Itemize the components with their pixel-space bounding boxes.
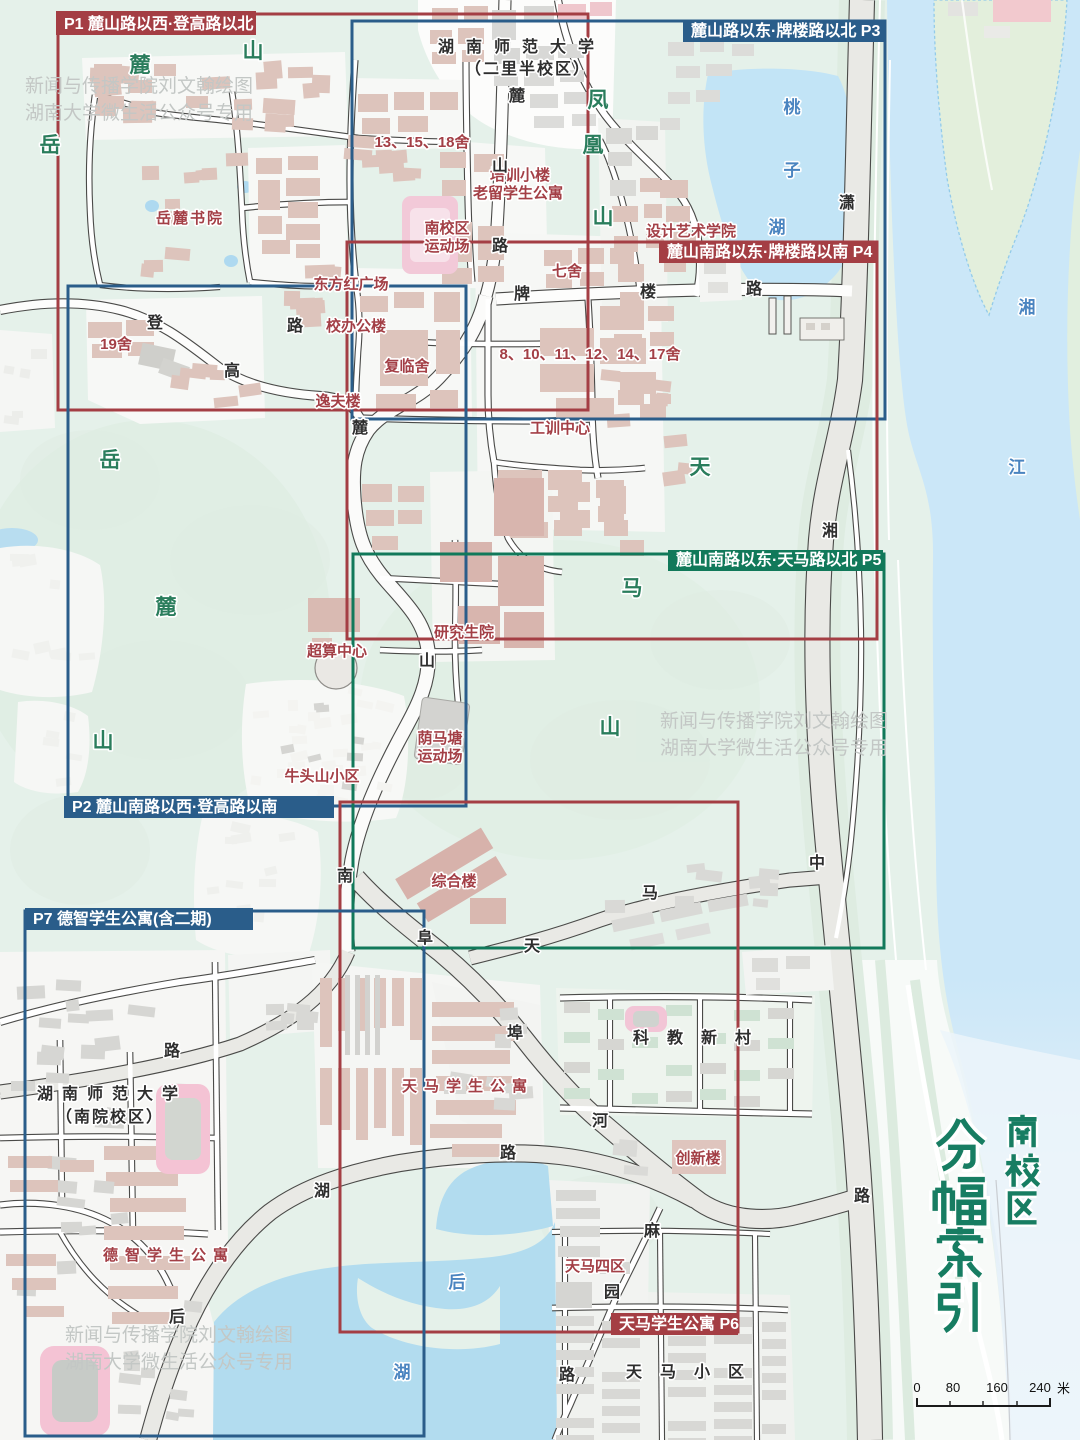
svg-text:牌: 牌 [514,284,530,303]
svg-text:湖: 湖 [394,1363,411,1382]
svg-text:新闻与传播学院刘文翰绘图: 新闻与传播学院刘文翰绘图 [25,75,253,97]
svg-text:湖: 湖 [769,218,786,237]
svg-text:（南院校区）: （南院校区） [56,1107,164,1126]
svg-text:运动场: 运动场 [424,237,469,255]
svg-text:路: 路 [492,236,509,255]
svg-text:设计艺术学院: 设计艺术学院 [646,222,736,240]
svg-text:天: 天 [690,456,712,479]
svg-text:P1 麓山路以西·登高路以北: P1 麓山路以西·登高路以北 [64,14,253,33]
svg-text:马: 马 [622,577,643,600]
svg-text:后: 后 [169,1308,185,1326]
svg-text:登: 登 [146,313,164,332]
svg-text:逸夫楼: 逸夫楼 [315,392,360,410]
svg-text:80: 80 [946,1380,960,1395]
svg-text:0: 0 [913,1380,920,1395]
svg-text:高: 高 [224,361,240,380]
svg-text:新闻与传播学院刘文翰绘图: 新闻与传播学院刘文翰绘图 [660,710,888,732]
svg-text:科教新村: 科教新村 [633,1028,769,1047]
svg-text:运动场: 运动场 [417,747,462,765]
svg-text:后: 后 [449,1273,466,1292]
svg-text:麓山南路以东·牌楼路以南 P4: 麓山南路以东·牌楼路以南 P4 [666,242,872,261]
svg-text:19舍: 19舍 [100,335,133,353]
svg-text:湘: 湘 [822,521,838,540]
svg-text:七舍: 七舍 [552,262,583,280]
svg-text:湖南大学微生活公众号专用: 湖南大学微生活公众号专用 [660,737,888,759]
svg-text:天马四区: 天马四区 [565,1258,625,1275]
svg-text:荫马塘: 荫马塘 [417,729,462,747]
svg-text:天马学生公寓 P6: 天马学生公寓 P6 [619,1314,739,1333]
svg-text:湖南大学微生活公众号专用: 湖南大学微生活公众号专用 [65,1351,293,1373]
svg-text:麓山路以东·牌楼路以北 P3: 麓山路以东·牌楼路以北 P3 [690,21,880,40]
svg-text:埠: 埠 [507,1023,523,1042]
svg-text:路: 路 [854,1186,871,1205]
svg-text:江: 江 [1009,458,1026,477]
svg-text:阜: 阜 [417,928,433,947]
svg-text:湘: 湘 [1019,297,1036,317]
svg-text:校办公楼: 校办公楼 [326,317,386,335]
svg-text:麻: 麻 [643,1221,661,1240]
svg-text:8、10、11、12、14、17舍: 8、10、11、12、14、17舍 [500,345,682,363]
svg-text:德智学生公寓: 德智学生公寓 [103,1246,235,1264]
svg-text:天马学生公寓: 天马学生公寓 [402,1077,534,1095]
svg-text:山: 山 [419,652,435,670]
svg-text:天马小区: 天马小区 [626,1363,762,1381]
svg-text:凤: 凤 [588,89,609,112]
svg-text:湖: 湖 [314,1182,330,1200]
svg-text:13、15、18舍: 13、15、18舍 [374,133,470,151]
svg-text:路: 路 [746,279,763,298]
svg-text:麓: 麓 [508,86,526,105]
svg-text:米: 米 [1057,1381,1070,1396]
svg-text:湖南大学微生活公众号专用: 湖南大学微生活公众号专用 [25,102,253,124]
svg-text:中: 中 [809,853,825,872]
svg-text:园: 园 [604,1283,620,1301]
svg-text:（二里半校区）: （二里半校区） [465,59,591,78]
svg-text:路: 路 [559,1365,576,1384]
svg-text:马: 马 [642,884,658,902]
svg-text:研究生院: 研究生院 [434,623,494,641]
svg-text:工训中心: 工训中心 [530,419,590,437]
svg-text:路: 路 [500,1143,517,1162]
svg-text:160: 160 [986,1380,1008,1395]
svg-text:凰: 凰 [583,134,604,157]
svg-text:牛头山小区: 牛头山小区 [284,767,359,785]
svg-text:麓: 麓 [130,54,152,77]
svg-text:河: 河 [592,1111,608,1130]
svg-text:天: 天 [524,938,541,955]
svg-text:麓: 麓 [351,418,369,437]
svg-text:岳: 岳 [40,134,61,157]
svg-text:南: 南 [337,866,353,885]
svg-text:湖南师范大学: 湖南师范大学 [37,1084,187,1103]
svg-text:P7 德智学生公寓(含二期): P7 德智学生公寓(含二期) [33,909,212,928]
svg-text:麓山南路以东·天马路以北 P5: 麓山南路以东·天马路以北 P5 [675,550,881,569]
svg-text:山: 山 [600,716,621,739]
svg-text:超算中心: 超算中心 [306,642,367,660]
svg-text:麓: 麓 [156,596,178,619]
svg-text:新闻与传播学院刘文翰绘图: 新闻与传播学院刘文翰绘图 [65,1324,293,1346]
svg-text:山: 山 [593,206,614,229]
svg-text:岳麓书院: 岳麓书院 [156,209,224,227]
svg-text:湖南师范大学: 湖南师范大学 [438,37,606,56]
svg-text:楼: 楼 [640,282,656,301]
svg-text:创新楼: 创新楼 [674,1149,720,1167]
svg-text:南校区: 南校区 [424,219,469,237]
svg-text:桃: 桃 [784,97,801,117]
svg-text:山: 山 [93,730,114,753]
svg-text:综合楼: 综合楼 [431,872,476,890]
svg-text:复临舍: 复临舍 [383,357,430,375]
svg-text:山: 山 [492,157,508,175]
svg-text:潇: 潇 [839,193,855,212]
svg-text:路: 路 [287,316,304,335]
svg-text:240: 240 [1029,1380,1051,1395]
svg-text:老留学生公寓: 老留学生公寓 [472,184,563,202]
svg-text:路: 路 [164,1041,181,1060]
svg-text:岳: 岳 [100,449,121,472]
svg-text:P2 麓山南路以西·登高路以南: P2 麓山南路以西·登高路以南 [72,797,277,816]
svg-text:山: 山 [243,40,264,63]
svg-text:东方红广场: 东方红广场 [313,275,388,293]
svg-text:子: 子 [784,161,801,180]
